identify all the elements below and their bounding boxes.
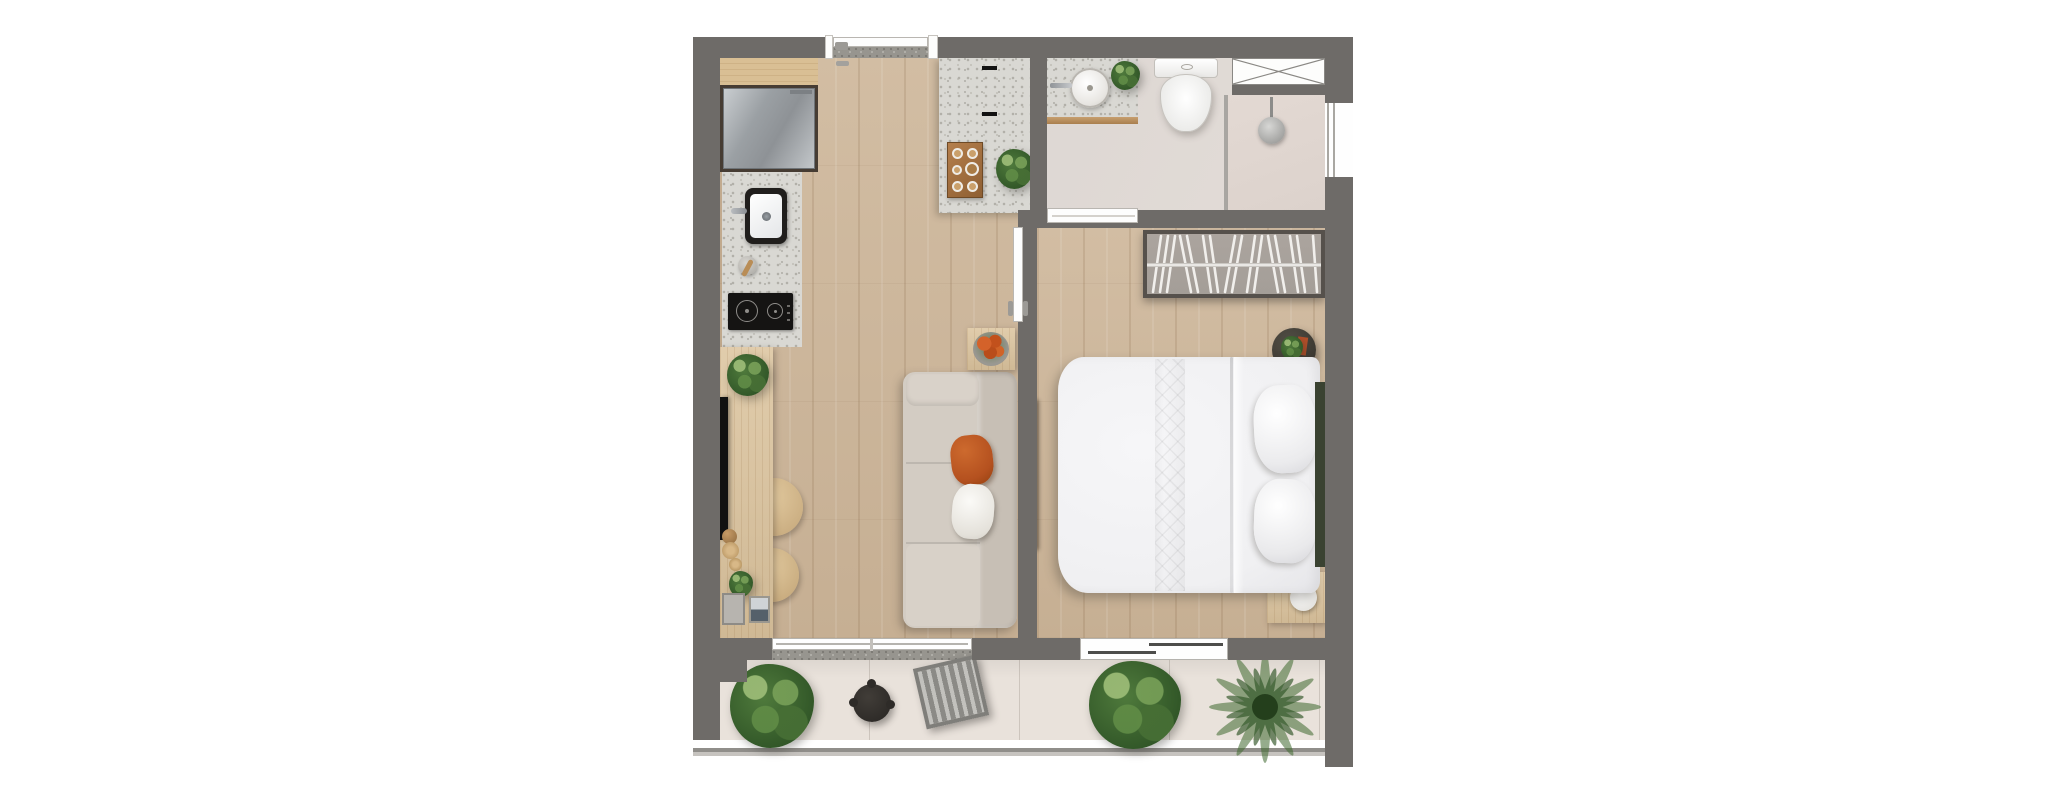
flush-button-icon <box>1181 64 1193 70</box>
apartment-floor-plan <box>693 37 1353 767</box>
refrigerator <box>723 88 815 169</box>
sofa-chaise <box>906 544 980 626</box>
balcony-step-wall <box>720 660 747 682</box>
bedroom-window <box>1080 638 1228 660</box>
photo-frame-left <box>722 593 745 625</box>
burner-right-center <box>774 310 777 313</box>
entrance-inner-handle <box>836 61 849 66</box>
wardrobe <box>1143 230 1325 298</box>
balcony-coffee-table <box>853 684 891 722</box>
mug-icon <box>952 148 963 159</box>
cooktop <box>728 293 793 330</box>
window-pane-right <box>1149 643 1223 646</box>
bottom-wall-left <box>693 638 772 660</box>
sink-drain-dot <box>1087 85 1093 91</box>
sheet-fold-line <box>1230 357 1233 593</box>
photo-frame-right <box>749 596 770 623</box>
mug-icon <box>952 165 962 175</box>
wardrobe-clothes-icon <box>1147 234 1321 294</box>
bottom-wall-right <box>1228 638 1325 660</box>
window-frame-line <box>1327 103 1329 177</box>
entrance-door-handle <box>835 42 848 50</box>
door-panel-line <box>1052 215 1135 217</box>
sheet-fold-highlight <box>1234 357 1244 593</box>
table-knob <box>867 679 876 688</box>
mug-icon <box>967 181 978 192</box>
shower-top-wall <box>1232 85 1325 95</box>
console-drawer-handle-1 <box>982 66 997 70</box>
left-wall <box>693 37 720 740</box>
shaft-x-icon <box>1233 59 1324 84</box>
kitchen-sink <box>745 188 787 244</box>
carafe-icon <box>965 162 979 176</box>
burner-left-center <box>745 309 749 313</box>
palm-fronds-icon <box>1195 645 1335 769</box>
kitchen-upper-counter <box>720 57 818 88</box>
console-drawer-handle-2 <box>982 112 997 116</box>
cooktop-controls <box>787 301 790 321</box>
floor-plan-canvas <box>0 0 2048 800</box>
vanity-round-sink <box>1070 68 1110 108</box>
kitchen-faucet-icon <box>731 208 747 214</box>
vanity-wood-edge <box>1045 117 1138 124</box>
living-balcony-door <box>772 638 972 650</box>
top-wall-right <box>938 37 1353 58</box>
right-wall-upper <box>1325 37 1353 103</box>
sliding-door-handle-right <box>1023 301 1028 316</box>
shower-floor <box>1227 95 1325 210</box>
wardrobe-interior <box>1147 234 1321 294</box>
mug-icon <box>952 181 963 192</box>
service-shaft <box>1232 58 1325 85</box>
double-bed <box>1058 357 1320 593</box>
shower-glass-partition <box>1224 95 1228 210</box>
door-mullion <box>870 639 873 651</box>
vanity-faucet-icon <box>1050 83 1072 88</box>
duvet-quilted-band <box>1155 359 1185 591</box>
woven-plate-small <box>729 558 742 571</box>
entrance-jamb-right <box>928 35 938 59</box>
window-frame-line <box>1333 103 1335 177</box>
living-tv-panel <box>720 397 728 540</box>
entrance-jamb-left <box>825 35 833 59</box>
table-knob <box>886 700 895 709</box>
shower-window <box>1325 103 1353 177</box>
bathroom-left-wall <box>1030 57 1047 210</box>
mug-icon <box>967 148 978 159</box>
right-wall-lower <box>1325 177 1353 767</box>
bedroom-sliding-door-leaf <box>1013 227 1023 322</box>
shower-head-icon <box>1258 117 1285 144</box>
table-knob <box>849 698 858 707</box>
balcony-palm-plant <box>1195 645 1335 769</box>
orange-flower-decor <box>974 332 1008 365</box>
living-balcony-threshold <box>772 650 972 660</box>
bed-pillow-top <box>1252 383 1319 474</box>
console-serving-tray <box>947 142 983 198</box>
sink-drain <box>762 212 771 221</box>
sofa-armrest-top <box>906 374 979 406</box>
bed-pillow-bottom <box>1253 478 1318 564</box>
bottom-wall-center <box>972 638 1080 660</box>
woven-plate-large <box>722 542 739 559</box>
bed-headboard <box>1315 382 1325 567</box>
refrigerator-hinge <box>790 90 812 94</box>
window-pane-left <box>1088 651 1156 654</box>
bathroom-door-leaf <box>1047 208 1138 223</box>
sliding-door-handle-left <box>1008 301 1013 316</box>
